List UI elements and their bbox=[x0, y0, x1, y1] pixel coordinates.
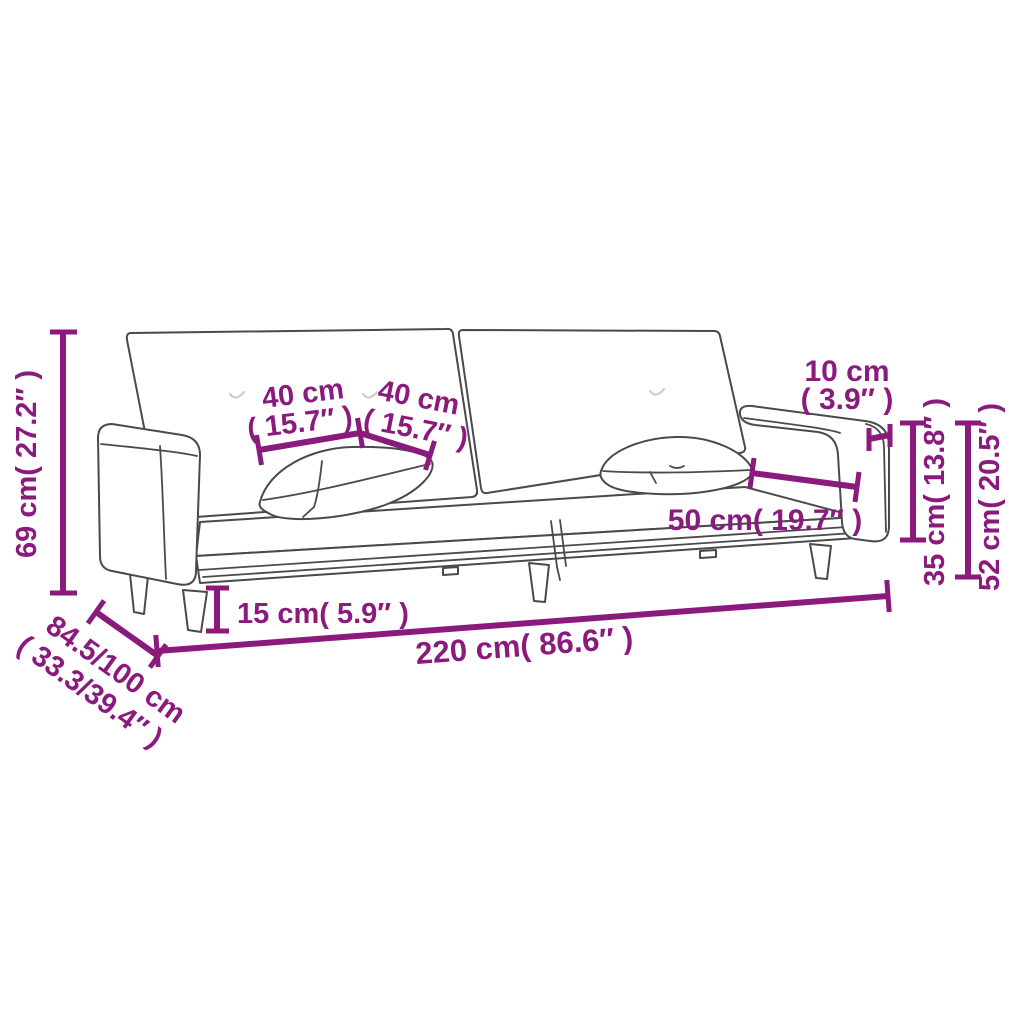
dim-armrest-top-label-in: ( 3.9″ ) bbox=[801, 383, 894, 416]
dimension-tick bbox=[887, 580, 889, 612]
dim-seat-depth-label: 50 cm( 19.7″ ) bbox=[668, 504, 862, 537]
dimension-tick bbox=[750, 458, 754, 488]
dimension-tick bbox=[88, 601, 104, 624]
dim-overall-height-label: 69 cm( 27.2″ ) bbox=[11, 370, 43, 558]
armrest-left bbox=[98, 424, 200, 585]
seat-base-divider bbox=[557, 567, 560, 580]
base-tab bbox=[700, 550, 716, 558]
dim-armrest-height: 35 cm( 13.8″ ) bbox=[900, 398, 951, 586]
dim-armrest-height-label: 35 cm( 13.8″ ) bbox=[919, 398, 951, 586]
dimension-tick bbox=[156, 635, 158, 667]
dim-backrest-height: 52 cm( 20.5″ ) bbox=[955, 403, 1006, 591]
sofa-leg bbox=[183, 590, 207, 632]
dim-overall-height: 69 cm( 27.2″ ) bbox=[11, 332, 77, 593]
sofa-leg bbox=[810, 544, 831, 579]
base-tab bbox=[443, 567, 458, 575]
diagram-stage: 69 cm( 27.2″ ) 84.5/100 cm ( 33.3/39.4″ … bbox=[0, 0, 1024, 1024]
sofa-dimension-diagram: 69 cm( 27.2″ ) 84.5/100 cm ( 33.3/39.4″ … bbox=[0, 0, 1024, 1024]
dim-leg-height: 15 cm( 5.9″ ) bbox=[206, 588, 409, 631]
dim-overall-depth: 84.5/100 cm ( 33.3/39.4″ ) bbox=[11, 601, 191, 758]
sofa-leg bbox=[130, 574, 148, 614]
sofa-leg bbox=[529, 563, 549, 602]
dimension-line bbox=[869, 435, 890, 439]
dim-leg-height-label: 15 cm( 5.9″ ) bbox=[237, 598, 409, 630]
dim-backrest-height-label: 52 cm( 20.5″ ) bbox=[974, 403, 1006, 591]
